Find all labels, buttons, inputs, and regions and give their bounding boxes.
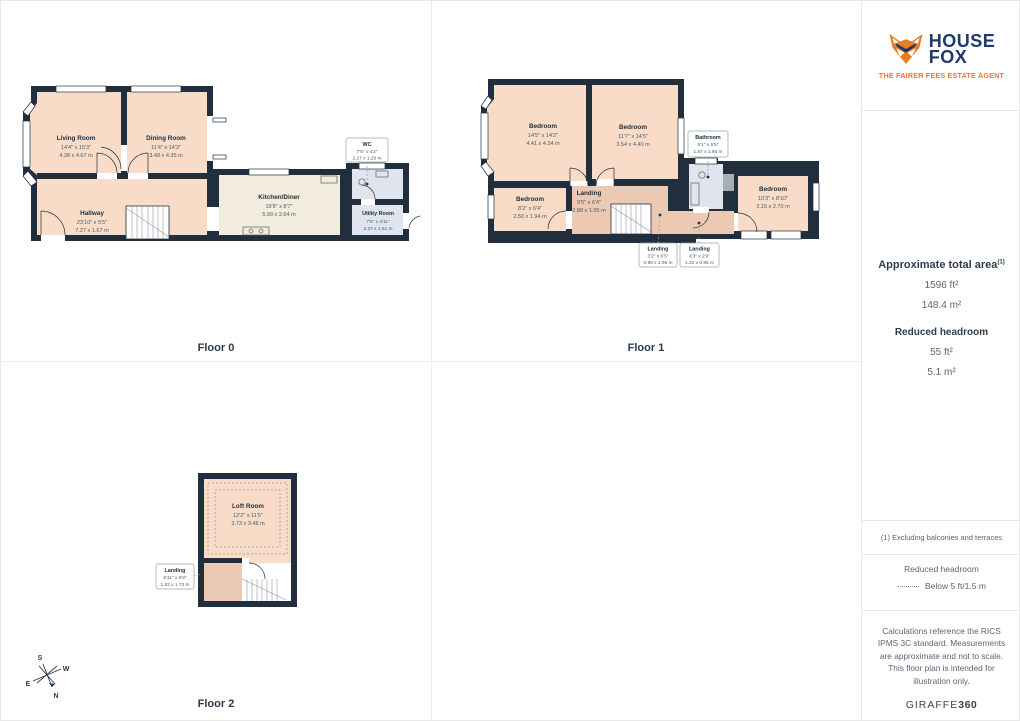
horizontal-divider [1,361,861,362]
window [56,86,106,92]
door-opening [128,173,148,179]
floor0-plan: Living Room 14'4" x 15'3" 4.38 x 4.67 m … [21,81,421,245]
room-dim-m: 3.73 x 3.48 m [231,521,265,527]
room-dim-m: 3.48 x 4.35 m [149,153,183,159]
window [695,158,717,164]
french-door-opening [207,116,213,161]
room-name: Utility Room [362,211,394,217]
room-dim-m: 2.88 x 1.95 m [572,208,606,214]
door-opening [596,179,614,186]
door-opening [566,211,572,229]
bathroom-area [689,164,723,209]
room-name: Kitchen/Diner [258,194,300,201]
room-dim-ft: 5'11" x 5'8" [163,575,187,581]
window [359,163,385,169]
window [741,231,767,239]
brand-tagline: THE FAIRER FEES ESTATE AGENT [879,71,1004,80]
window [771,231,801,239]
reduced-headroom-title: Reduced headroom [862,327,1020,338]
room-name: Bedroom [759,186,787,193]
compass-east: E [26,681,31,688]
room-name: WC [363,142,372,148]
bedroom2-label: Bedroom 11'7" x 14'5" 3.54 x 4.40 m [616,124,650,148]
door-opening [97,173,117,179]
room-dim-m: 2.50 x 1.94 m [513,214,547,220]
french-door-leaf [213,118,226,122]
room-dim-m: 3.15 x 2.70 m [756,204,790,210]
total-area-title-text: Approximate total area [878,259,997,271]
french-door-leaf [213,155,226,159]
floor1-plan: Bedroom 14'5" x 14'2" 4.41 x 4.34 m Bedr… [471,71,823,276]
landing-area [204,563,242,601]
bedroom1-label: Bedroom 14'5" x 14'2" 4.41 x 4.34 m [526,123,560,147]
loft-room-area [249,558,291,563]
room-dim-m: 7.27 x 1.67 m [75,228,109,234]
room-name: Bedroom [529,123,557,130]
door-opening [734,213,738,231]
reduced-headroom-m: 5.1 m² [862,367,1020,378]
reduced-headroom-ft: 55 ft² [862,347,1020,358]
area-summary: Approximate total area(1) 1596 ft² 148.4… [862,111,1020,521]
stairs [611,204,651,234]
living-room-label: Living Room 14'4" x 15'3" 4.38 x 4.67 m [57,135,96,159]
area-footnote: (1) Excluding balconies and terraces [862,521,1020,555]
opening [207,207,219,231]
room-dim-ft: 3'2" x 6'5" [648,254,669,260]
room-dim-ft: 19'8" x 8'7" [265,204,292,210]
bedroom4-label: Bedroom 8'2" x 6'4" 2.50 x 1.94 m [513,196,547,220]
room-dim-m: 4.41 x 4.34 m [526,141,560,147]
window [249,169,289,175]
room-name: Loft Room [232,503,264,510]
compass-west: W [63,666,70,673]
room-dim-ft: 14'5" x 14'2" [528,133,558,139]
room-dim-m: 5.99 x 2.64 m [262,212,296,218]
disclaimer: Calculations reference the RICS IPMS 3C … [862,611,1020,711]
room-dim-ft: 4'3" x 2'9" [689,254,710,260]
room-dim-ft: 10'3" x 8'10" [758,196,788,202]
agency-logo: HOUSE FOX THE FAIRER FEES ESTATE AGENT [862,1,1020,111]
room-name: Living Room [57,135,96,142]
room-dim-ft: 23'10" x 5'5" [77,220,107,226]
window [131,86,181,92]
floorplan-page: Living Room 14'4" x 15'3" 4.38 x 4.67 m … [0,0,1020,721]
room-dim-ft: 11'4" x 14'3" [151,145,181,151]
floor2-label: Floor 2 [1,698,431,710]
room-name: Landing [577,190,602,197]
living-room-area [37,92,121,173]
room-name: Landing [648,247,669,253]
room-name: Landing [165,568,186,574]
room-name: Bedroom [516,196,544,203]
floor2-plan: Loft Room 12'2" x 11'5" 3.73 x 3.48 m La… [146,466,311,614]
provider-name: GIRAFFE [906,699,959,711]
room-dim-ft: 8'2" x 6'4" [518,206,542,212]
disclaimer-text: Calculations reference the RICS IPMS 3C … [874,625,1009,687]
stairwell-area [242,563,291,601]
door-opening [242,558,249,563]
window [678,118,684,154]
landing-label: Landing 9'5" x 6'4" 2.88 x 1.95 m [572,190,606,214]
legend-title: Reduced headroom [862,564,1020,574]
room-dim-m: 3.54 x 4.40 m [616,142,650,148]
utility-room-label: Utility Room 7'5" x 4'11" 2.27 x 1.51 m [362,211,394,232]
room-dim-m: 1.83 x 1.73 m [160,582,189,588]
total-area-ft: 1596 ft² [862,280,1020,291]
room-name: Bedroom [619,124,647,131]
door-opening [570,181,588,186]
brand-name-line2: FOX [929,49,996,65]
room-dim-m: 0.98 x 1.96 m [643,260,672,266]
room-dim-ft: 12'2" x 11'5" [233,513,263,519]
fox-icon [888,32,924,66]
chimney-block [723,174,734,191]
dotted-line-sample [897,586,919,587]
living-room-bay [30,103,37,175]
room-dim-m: 1.57 x 1.66 m [693,149,722,155]
total-area-title: Approximate total area(1) [862,259,1020,271]
info-panel: HOUSE FOX THE FAIRER FEES ESTATE AGENT A… [861,1,1020,721]
provider-logo: GIRAFFE360 [874,699,1009,711]
room-name: Dining Room [146,135,186,142]
compass-icon: S W E N [19,647,79,703]
room-dim-m: 4.38 x 4.67 m [59,153,93,159]
total-area-footnote-marker: (1) [997,259,1004,265]
room-dim-ft: 11'7" x 14'5" [618,134,648,140]
bedroom2-area [592,85,678,179]
room-name: Landing [689,247,710,253]
loft-room-label: Loft Room 12'2" x 11'5" 3.73 x 3.48 m [231,503,265,527]
stairs [126,206,169,239]
door-opening [693,207,709,213]
bedroom3-label: Bedroom 10'3" x 8'10" 3.15 x 2.70 m [756,186,790,210]
dining-room-label: Dining Room 11'4" x 14'3" 3.48 x 4.35 m [146,135,186,159]
window [488,195,494,219]
window [813,183,819,211]
room-name: Bathroom [695,135,721,141]
headroom-legend: Reduced headroom Below 5 ft/1.5 m [862,555,1020,611]
room-dim-m: 1.31 x 0.85 m [685,260,714,266]
hallway-area [37,179,207,235]
bay-window [23,121,30,167]
room-name: Hallway [80,210,104,217]
legend-item: Below 5 ft/1.5 m [925,581,986,591]
dining-room-area [127,92,207,173]
compass-south: S [38,655,43,662]
front-door-opening [41,235,65,241]
provider-name-bold: 360 [958,699,977,711]
door-opening [403,213,409,229]
room-dim-m: 2.27 x 1.29 m [352,156,381,162]
room-dim-ft: 7'5" x 4'2" [357,149,378,155]
landing-label-box: Landing 5'11" x 5'8" 1.83 x 1.73 m [156,564,203,589]
room-dim-ft: 7'5" x 4'11" [366,219,390,225]
room-dim-ft: 14'4" x 15'3" [61,145,91,151]
door-opening [361,199,375,205]
total-area-m: 148.4 m² [862,300,1020,311]
room-dim-m: 2.27 x 1.51 m [363,226,392,232]
floor0-label: Floor 0 [1,342,431,354]
room-dim-ft: 9'5" x 6'4" [577,200,601,206]
room-dim-ft: 5'1" x 5'5" [698,142,719,148]
bay-window [481,113,488,159]
floor1-label: Floor 1 [431,342,861,354]
door-swing [409,216,420,228]
door-opening [121,145,127,171]
